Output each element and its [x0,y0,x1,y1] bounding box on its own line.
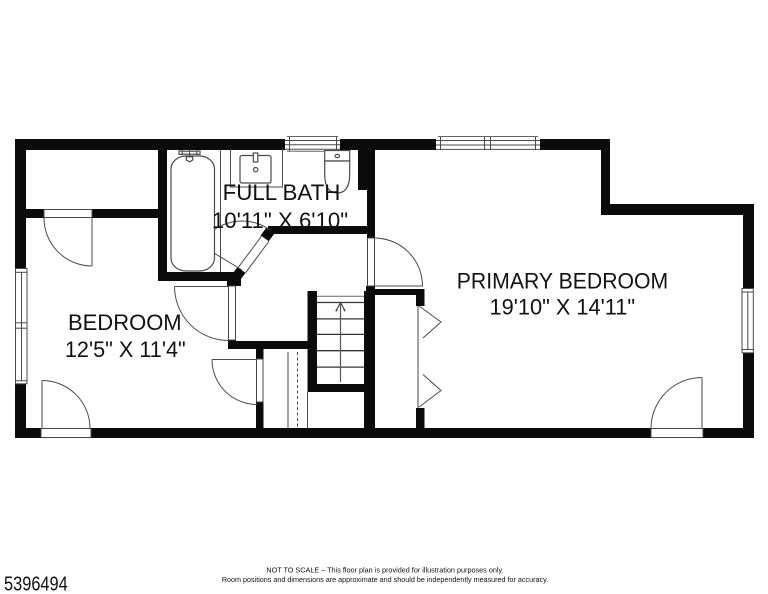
svg-text:10'11" X 6'10": 10'11" X 6'10" [212,208,348,233]
svg-text:PRIMARY BEDROOM: PRIMARY BEDROOM [457,268,668,293]
svg-text:Room positions and dimensions: Room positions and dimensions are approx… [222,575,548,584]
svg-text:FULL BATH: FULL BATH [223,180,341,205]
svg-text:19'10" X 14'11": 19'10" X 14'11" [489,294,635,319]
svg-text:12'5" X 11'4": 12'5" X 11'4" [65,337,186,362]
svg-text:BEDROOM: BEDROOM [68,310,182,335]
svg-text:5396494: 5396494 [4,572,68,594]
svg-text:NOT TO SCALE – This floor plan: NOT TO SCALE – This floor plan is provid… [266,566,503,575]
